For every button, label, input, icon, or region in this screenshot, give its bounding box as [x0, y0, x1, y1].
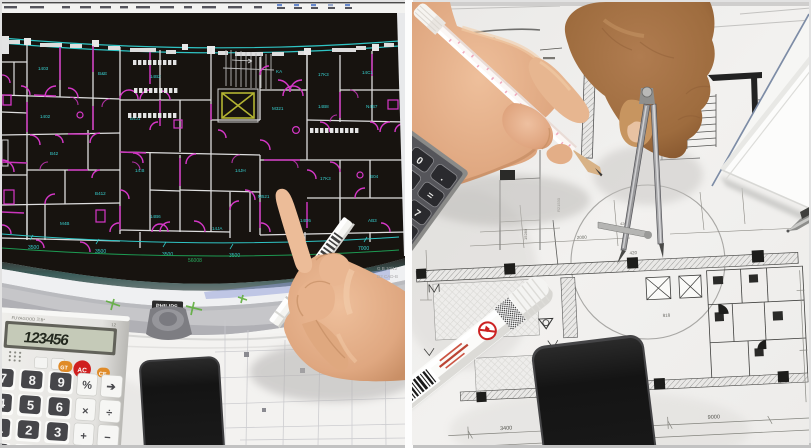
svg-text:1402: 1402: [40, 114, 51, 119]
svg-text:6: 6: [55, 399, 63, 414]
svg-text:GT: GT: [60, 365, 69, 372]
svg-text:14C1: 14C1: [362, 70, 373, 75]
svg-text:14B8: 14B8: [318, 104, 329, 109]
svg-text:123456: 123456: [22, 329, 70, 349]
svg-text:×: ×: [82, 405, 89, 417]
svg-text:2: 2: [25, 422, 33, 437]
svg-text:8: 8: [28, 372, 36, 387]
svg-text:2000: 2000: [577, 235, 588, 241]
svg-text:M321: M321: [272, 106, 284, 111]
svg-text:56008: 56008: [188, 258, 202, 264]
svg-text:1403: 1403: [38, 66, 49, 71]
svg-text:9000: 9000: [708, 414, 721, 421]
svg-text:KA: KA: [276, 69, 283, 74]
svg-text:14B6: 14B6: [150, 214, 161, 219]
svg-text:15280: 15280: [523, 228, 528, 240]
svg-text:818: 818: [663, 313, 671, 318]
svg-text:M521: M521: [258, 194, 270, 199]
svg-text:5: 5: [26, 397, 34, 412]
svg-text:B42: B42: [50, 151, 59, 156]
svg-text:➔: ➔: [106, 381, 117, 394]
svg-text:9: 9: [57, 375, 65, 390]
svg-text:B04: B04: [370, 174, 379, 179]
svg-text:AB3: AB3: [368, 218, 377, 223]
svg-text:14JA: 14JA: [212, 226, 223, 231]
svg-text:%: %: [82, 379, 93, 392]
svg-text:M4B: M4B: [60, 221, 69, 226]
svg-text:14D5: 14D5: [300, 218, 311, 223]
svg-text:3500: 3500: [162, 252, 173, 258]
svg-text:3: 3: [54, 424, 62, 439]
svg-text:B&E: B&E: [98, 71, 107, 76]
svg-text:14.B: 14.B: [135, 168, 144, 173]
svg-text:3400: 3400: [500, 425, 513, 432]
svg-text:17K3: 17K3: [318, 72, 329, 77]
svg-text:−: −: [104, 432, 111, 444]
svg-text:÷: ÷: [106, 407, 113, 419]
svg-text:D2 CAD-B: D2 CAD-B: [377, 274, 398, 279]
svg-text:14B2: 14B2: [150, 74, 161, 79]
svg-text:17K3: 17K3: [320, 176, 331, 181]
svg-text:G B 10/12: G B 10/12: [377, 266, 398, 271]
svg-text:14JH: 14JH: [235, 168, 246, 173]
svg-text:+: +: [80, 430, 87, 442]
svg-text:N4B7: N4B7: [366, 104, 378, 109]
svg-text:420: 420: [629, 250, 637, 255]
svg-text:7000: 7000: [358, 246, 369, 252]
svg-text:B412: B412: [95, 191, 106, 196]
